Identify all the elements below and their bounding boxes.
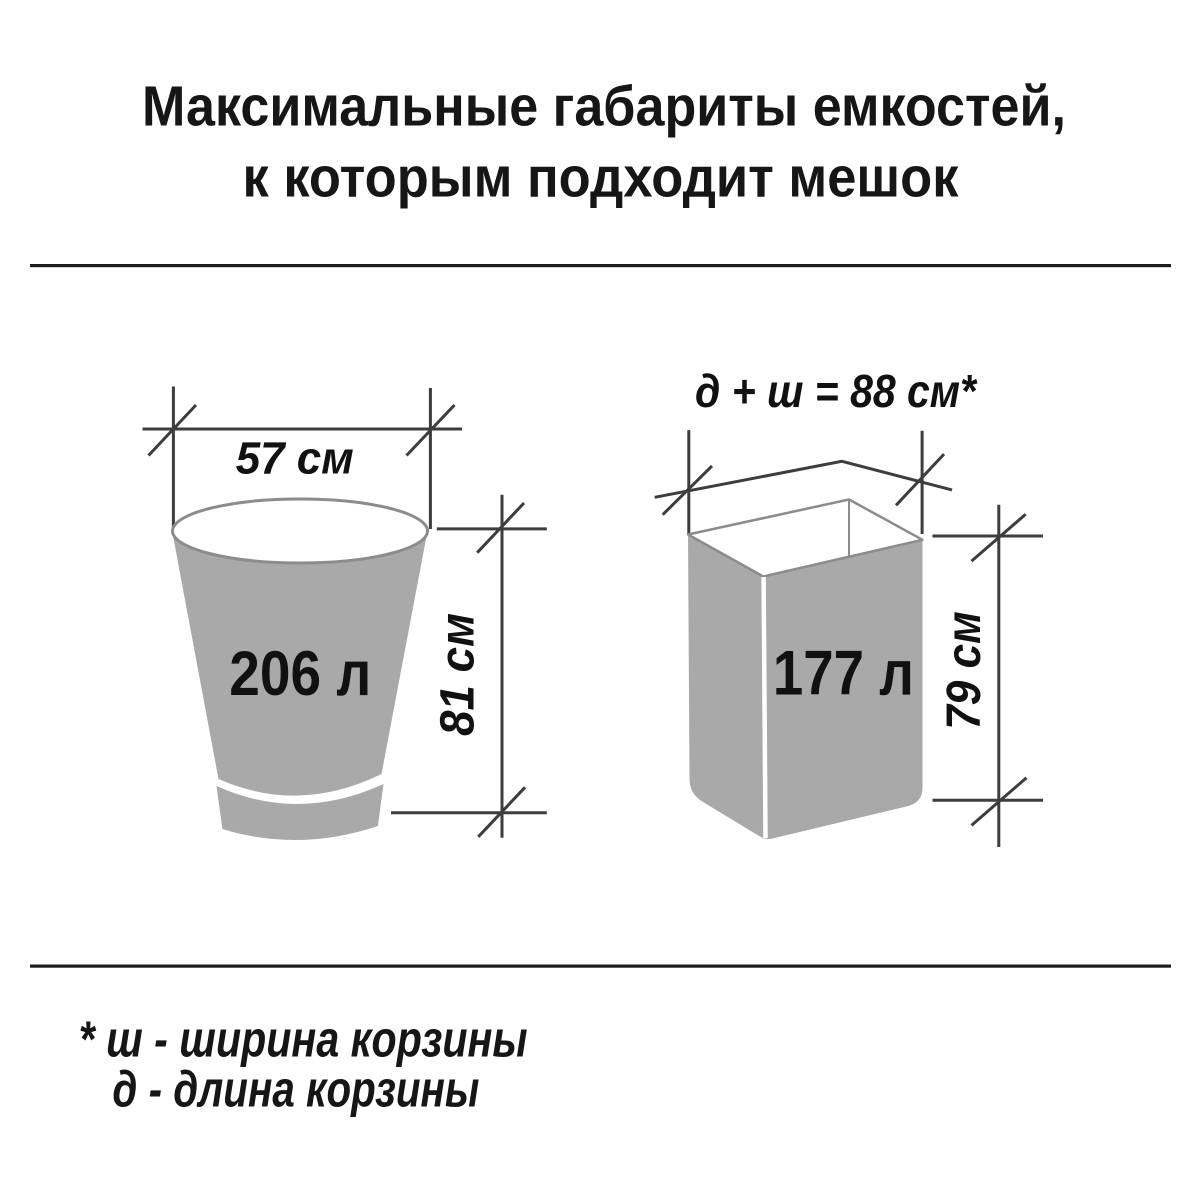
svg-text:57 см: 57 см: [236, 433, 354, 484]
svg-text:Максимальные габариты емкостей: Максимальные габариты емкостей,: [142, 75, 1066, 139]
svg-text:177 л: 177 л: [773, 639, 914, 709]
svg-text:* ш - ширина корзины: * ш - ширина корзины: [79, 1011, 528, 1068]
svg-text:д - длина корзины: д - длина корзины: [112, 1061, 479, 1118]
svg-text:206 л: 206 л: [229, 639, 371, 709]
svg-text:к которым подходит мешок: к которым подходит мешок: [243, 145, 959, 209]
svg-text:79 см: 79 см: [938, 611, 991, 730]
svg-text:81 см: 81 см: [432, 613, 485, 736]
svg-text:д + ш = 88 см*: д + ш = 88 см*: [695, 365, 978, 417]
